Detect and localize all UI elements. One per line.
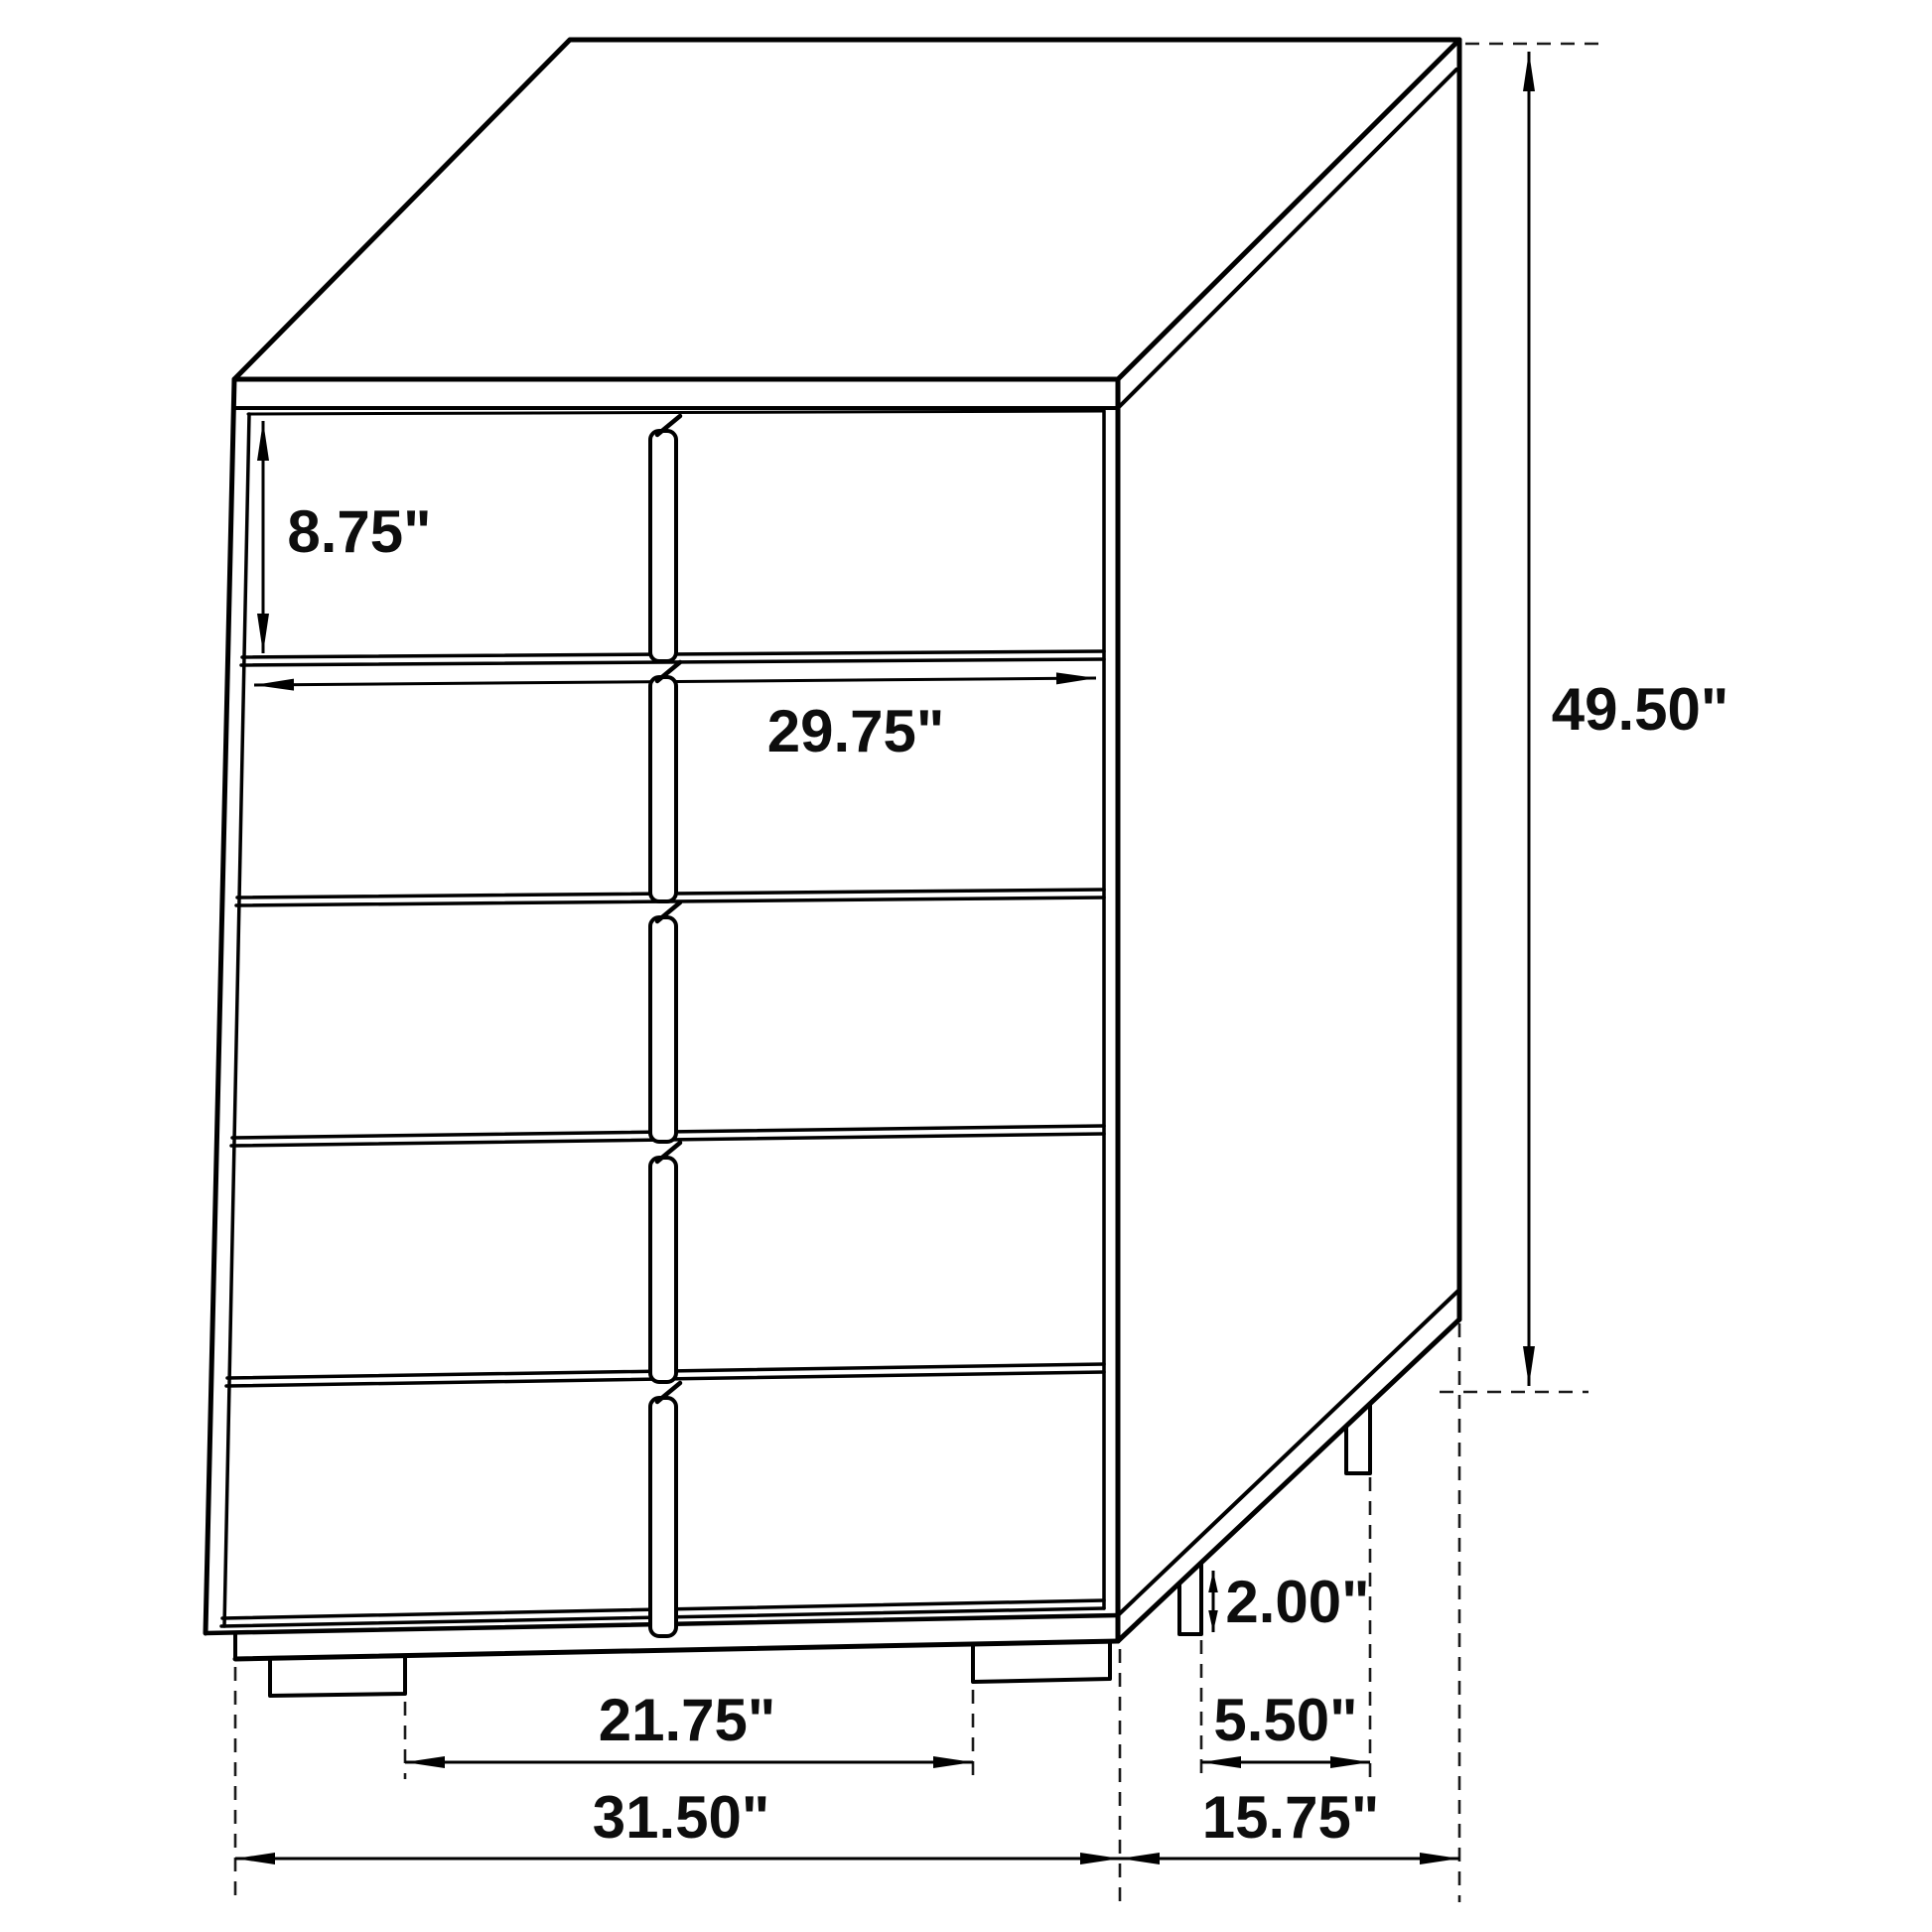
drawer-handle (650, 917, 676, 1142)
chest-dimension-drawing: 8.75" 29.75" 49.50" 2.00" 5.50" 21.75" 3… (0, 0, 1932, 1932)
drawer-handle (650, 431, 676, 661)
drawer-handle (650, 1158, 676, 1382)
dim-label-front-foot-spacing: 21.75" (599, 1687, 776, 1753)
dimension-diagram-page: 8.75" 29.75" 49.50" 2.00" 5.50" 21.75" 3… (0, 0, 1932, 1932)
dim-label-foot-height: 2.00" (1225, 1569, 1369, 1635)
drawer-handle (650, 677, 676, 901)
dim-label-drawer-width: 29.75" (767, 698, 945, 764)
dim-drawer-width: 29.75" (767, 698, 945, 764)
dim-foot-height: 2.00" (1213, 1569, 1370, 1635)
drawer-handle (650, 1398, 676, 1636)
drawer-handles (650, 416, 680, 1636)
dim-label-overall-height: 49.50" (1552, 676, 1729, 743)
dim-label-overall-width: 31.50" (593, 1784, 770, 1851)
dim-label-overall-depth: 15.75" (1202, 1784, 1380, 1851)
dim-label-top-drawer-height: 8.75" (287, 498, 431, 565)
dim-label-side-foot-spacing: 5.50" (1213, 1687, 1357, 1753)
